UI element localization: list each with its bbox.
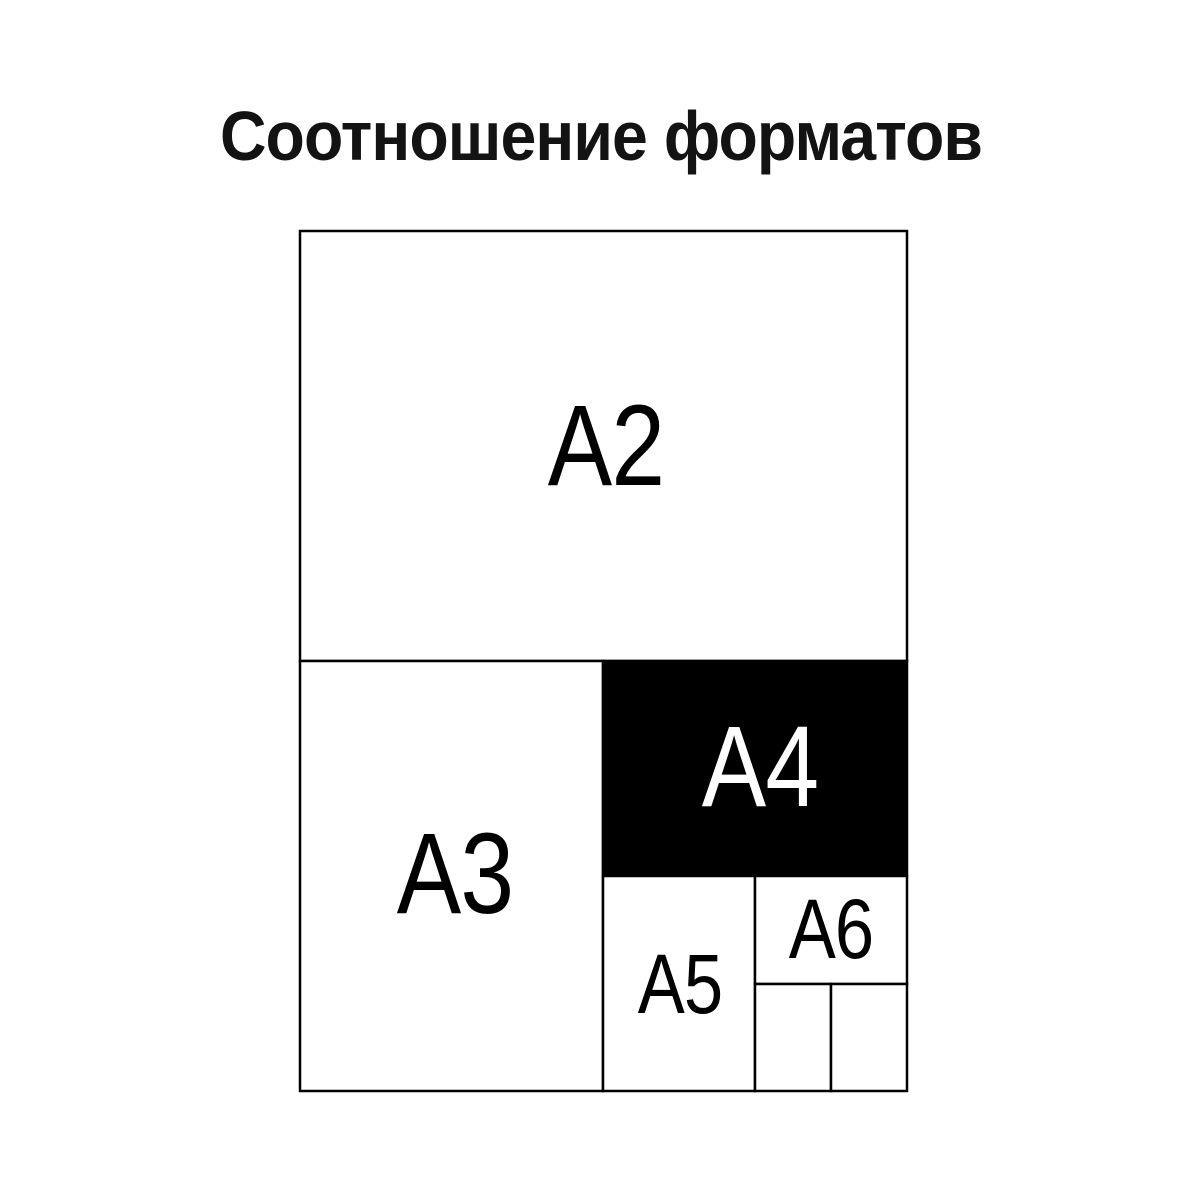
page: Соотношение форматов А2 А3 А4 А5 А6 [0, 0, 1200, 1200]
a5-label: А5 [638, 938, 723, 1031]
a3-label: А3 [397, 809, 513, 938]
page-title: Соотношение форматов [220, 98, 982, 176]
a2-label: А2 [548, 381, 664, 510]
a7-right-region [831, 984, 907, 1091]
a6-label: А6 [789, 883, 874, 976]
a7-left-region [755, 984, 831, 1091]
format-ratio-diagram: Соотношение форматов А2 А3 А4 А5 А6 [0, 0, 1200, 1200]
a4-label: А4 [702, 702, 818, 831]
